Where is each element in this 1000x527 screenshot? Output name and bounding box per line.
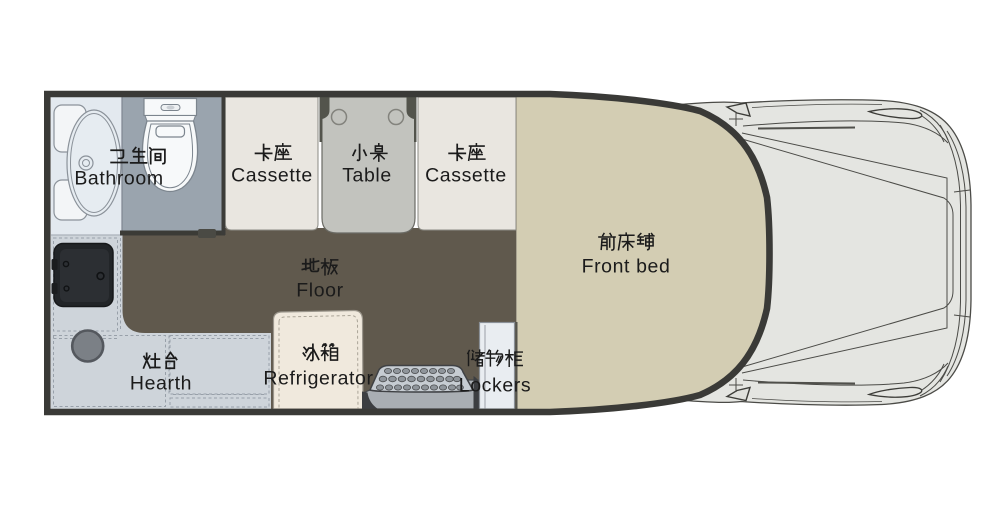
svg-text:Cassette: Cassette [425, 165, 507, 187]
svg-text:Bathroom: Bathroom [74, 168, 163, 190]
svg-text:Refrigerator: Refrigerator [263, 368, 373, 390]
svg-text:Table: Table [342, 165, 392, 187]
svg-text:Cassette: Cassette [231, 165, 313, 187]
svg-text:Lockers: Lockers [459, 375, 531, 397]
svg-text:Floor: Floor [296, 280, 343, 302]
svg-text:Front bed: Front bed [582, 256, 671, 278]
svg-text:Hearth: Hearth [130, 373, 192, 395]
